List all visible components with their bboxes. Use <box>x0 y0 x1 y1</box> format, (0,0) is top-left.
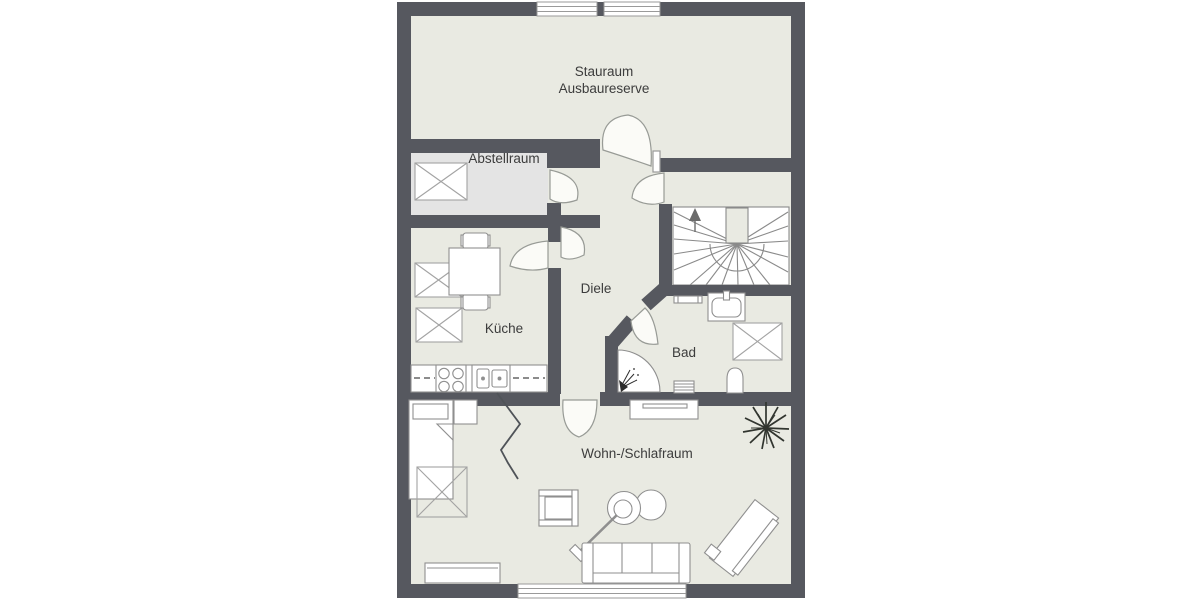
wall-outer-top-2 <box>597 2 604 16</box>
wall-kueche-right-upper <box>548 228 561 242</box>
washbasin-symbol <box>708 291 745 321</box>
room-label-diele: Diele <box>581 281 612 296</box>
towel-radiator-symbol <box>674 381 694 393</box>
wall-outer-bottom-1 <box>397 584 518 598</box>
room-label-stauraum-line1: Stauraum <box>575 64 634 79</box>
wall-outer-left <box>397 2 411 598</box>
wall-stair-left <box>659 204 672 285</box>
room-label-stauraum-line2: Ausbaureserve <box>559 81 650 96</box>
wall-outer-top-1 <box>397 2 537 16</box>
floorplan-drawing: Stauraum Ausbaureserve Abstellraum Diele… <box>0 0 1200 600</box>
pillow-symbol <box>413 404 448 419</box>
window-bottom <box>518 584 686 598</box>
roof-window-kueche-2 <box>416 308 462 342</box>
room-label-bad: Bad <box>672 345 696 360</box>
chair-symbol <box>463 294 488 310</box>
winder-staircase-symbol <box>673 207 789 285</box>
wall-corner-block <box>547 150 600 168</box>
dresser-symbol <box>425 563 500 583</box>
room-label-abstellraum: Abstellraum <box>468 151 539 166</box>
door-jamb-panel <box>653 151 660 172</box>
room-label-kueche: Küche <box>485 321 523 336</box>
wall-kueche-right-lower <box>548 268 561 394</box>
chair-symbol <box>463 233 488 249</box>
room-label-wohnschlafraum: Wohn-/Schlafraum <box>581 446 693 461</box>
wall-outer-bottom-2 <box>686 584 805 598</box>
bed-symbol <box>409 400 453 499</box>
armchair-symbol <box>539 490 578 526</box>
window-top-1 <box>537 2 597 16</box>
wall-outer-right <box>791 2 805 598</box>
wall-outer-top-3 <box>660 2 805 16</box>
nightstand-symbol <box>454 400 477 424</box>
radiator-symbol <box>674 296 702 303</box>
wall-kueche-top <box>397 215 600 228</box>
kitchen-counter-symbol <box>411 365 547 392</box>
sofa-symbol <box>582 543 690 583</box>
roof-window-abstellraum <box>415 163 467 200</box>
window-top-2 <box>604 2 660 16</box>
floorplan-page: Stauraum Ausbaureserve Abstellraum Diele… <box>0 0 1200 600</box>
wall-stauraum-bottom-right <box>660 158 805 172</box>
stair-newel <box>726 208 748 243</box>
roof-window-bad <box>733 323 782 360</box>
sideboard-symbol <box>630 400 698 419</box>
toilet-symbol <box>727 368 743 393</box>
